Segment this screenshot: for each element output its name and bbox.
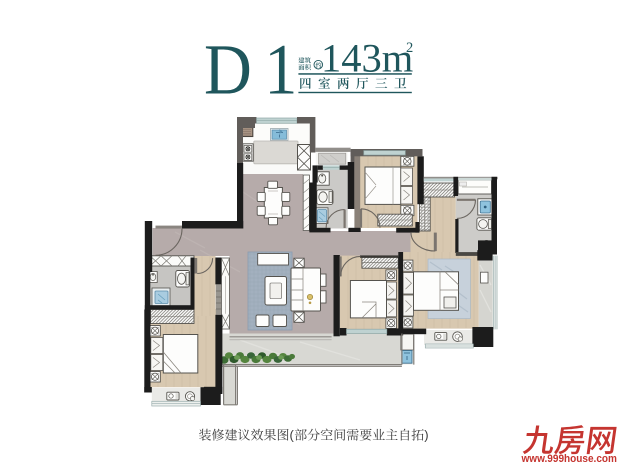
- svg-text:2: 2: [406, 40, 413, 56]
- svg-text:D1: D1: [204, 29, 310, 109]
- svg-text:(: (: [290, 427, 295, 442]
- svg-text:www.999house.com: www.999house.com: [521, 454, 617, 465]
- svg-text:): ): [424, 427, 428, 442]
